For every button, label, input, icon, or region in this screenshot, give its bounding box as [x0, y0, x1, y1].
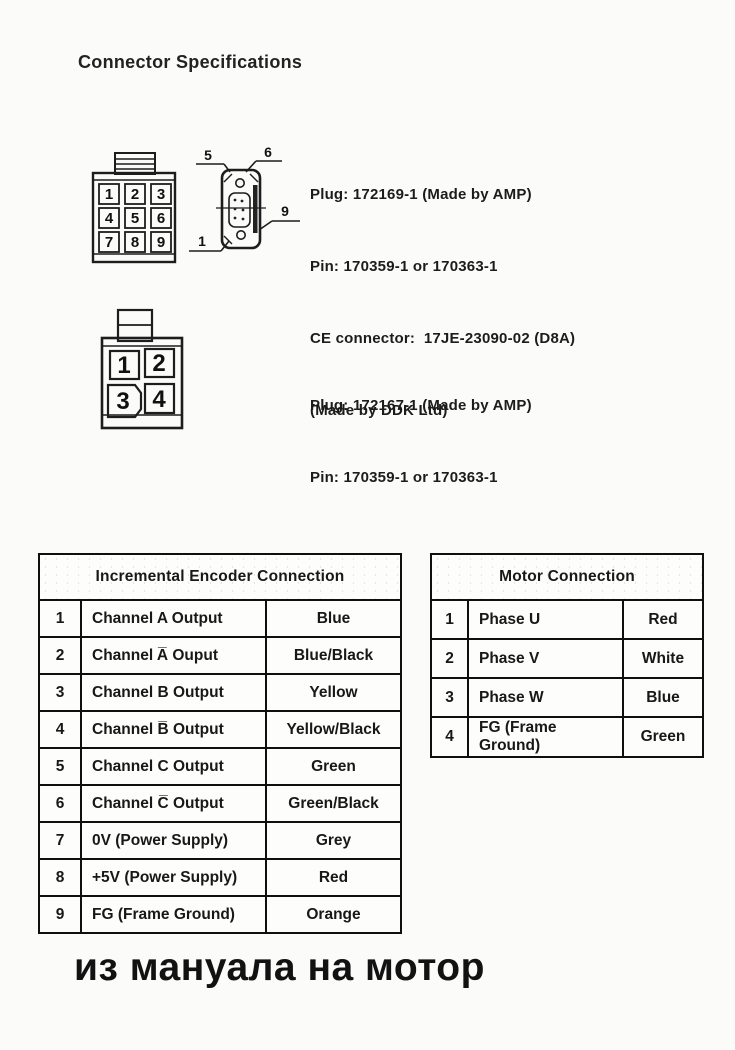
callout-label-1: 1 [198, 233, 206, 249]
table-row: 6 Channel C̅ Output Green/Black [39, 785, 401, 822]
wire-color-cell: Red [623, 600, 703, 639]
wire-color-cell: Green [266, 748, 401, 785]
motor-table-title: Motor Connection [431, 554, 703, 600]
signal-cell: Phase W [468, 678, 623, 717]
table-row: 2 Channel A̅ Ouput Blue/Black [39, 637, 401, 674]
motor-connector-front-view: 1 2 3 4 [102, 310, 182, 428]
pin-cell: 7 [39, 822, 81, 859]
pin-number: 4 [152, 386, 166, 413]
encoder-connector-diagram: 1 2 3 4 5 6 7 8 9 [82, 138, 317, 273]
table-row: 1 Phase U Red [431, 600, 703, 639]
signal-cell: Channel A Output [81, 600, 266, 637]
pin-number: 3 [116, 388, 129, 415]
table-row: 2 Phase V White [431, 639, 703, 678]
pin-number: 4 [105, 210, 114, 227]
pin-number: 1 [105, 186, 113, 203]
encoder-connector-front-view: 1 2 3 4 5 6 7 8 9 [93, 153, 175, 262]
pin-cell: 2 [431, 639, 468, 678]
table-row: 3 Phase W Blue [431, 678, 703, 717]
table-header-row: Motor Connection [431, 554, 703, 600]
pin-cell: 1 [39, 600, 81, 637]
encoder-connector-side-view [216, 170, 266, 248]
callout-label-6: 6 [264, 144, 272, 160]
motor-connector-diagram: 1 2 3 4 [95, 303, 205, 433]
wire-color-cell: Yellow [266, 674, 401, 711]
table-row: 4 Channel B̅ Output Yellow/Black [39, 711, 401, 748]
signal-cell: Channel B̅ Output [81, 711, 266, 748]
pin-cell: 5 [39, 748, 81, 785]
wire-color-cell: Grey [266, 822, 401, 859]
pin-number: 3 [157, 186, 165, 203]
callout-label-9: 9 [281, 203, 289, 219]
pin-cell: 4 [39, 711, 81, 748]
table-row: 5 Channel C Output Green [39, 748, 401, 785]
table-row: 4 FG (Frame Ground) Green [431, 717, 703, 757]
pin-number: 9 [157, 234, 165, 251]
wire-color-cell: Blue [266, 600, 401, 637]
signal-cell: Channel C Output [81, 748, 266, 785]
pin-cell: 8 [39, 859, 81, 896]
signal-cell: Phase V [468, 639, 623, 678]
wire-color-cell: Yellow/Black [266, 711, 401, 748]
table-row: 9 FG (Frame Ground) Orange [39, 896, 401, 933]
pin-number: 7 [105, 234, 113, 251]
incremental-encoder-table: Incremental Encoder Connection 1 Channel… [38, 553, 402, 934]
pin-number: 2 [152, 350, 165, 377]
signal-cell: FG (Frame Ground) [81, 896, 266, 933]
wire-color-cell: Green [623, 717, 703, 757]
wire-color-cell: Orange [266, 896, 401, 933]
table-row: 7 0V (Power Supply) Grey [39, 822, 401, 859]
pin-number: 8 [131, 234, 139, 251]
wire-color-cell: White [623, 639, 703, 678]
motor-plug-specs: Plug: 172167-1 (Made by AMP) Pin: 170359… [310, 346, 532, 538]
signal-cell: Channel A̅ Ouput [81, 637, 266, 674]
pin-cell: 1 [431, 600, 468, 639]
wire-color-cell: Blue [623, 678, 703, 717]
pin-number: 2 [131, 186, 139, 203]
handwritten-note: из мануала на мотор [74, 946, 485, 990]
signal-cell: Channel B Output [81, 674, 266, 711]
signal-cell: 0V (Power Supply) [81, 822, 266, 859]
encoder-table-title: Incremental Encoder Connection [39, 554, 401, 600]
spec-line: Plug: 172167-1 (Made by AMP) [310, 394, 532, 418]
table-row: 1 Channel A Output Blue [39, 600, 401, 637]
spec-line: Plug: 172169-1 (Made by AMP) [310, 183, 575, 207]
wire-color-cell: Red [266, 859, 401, 896]
callout-label-5: 5 [204, 147, 212, 163]
table-header-row: Incremental Encoder Connection [39, 554, 401, 600]
signal-cell: FG (Frame Ground) [468, 717, 623, 757]
pin-cell: 3 [39, 674, 81, 711]
signal-cell: Phase U [468, 600, 623, 639]
table-row: 3 Channel B Output Yellow [39, 674, 401, 711]
pin-number: 6 [157, 210, 165, 227]
pin-number: 1 [117, 352, 130, 379]
page-title: Connector Specifications [78, 52, 302, 73]
scanned-manual-page: Connector Specifications 1 2 3 4 5 [0, 0, 735, 1050]
pin-cell: 4 [431, 717, 468, 757]
pin-cell: 3 [431, 678, 468, 717]
pin-cell: 9 [39, 896, 81, 933]
pin-cell: 6 [39, 785, 81, 822]
signal-cell: +5V (Power Supply) [81, 859, 266, 896]
wire-color-cell: Green/Black [266, 785, 401, 822]
spec-line: Pin: 170359-1 or 170363-1 [310, 466, 532, 490]
wire-color-cell: Blue/Black [266, 637, 401, 674]
table-row: 8 +5V (Power Supply) Red [39, 859, 401, 896]
pin-number: 5 [131, 210, 139, 227]
spec-line: Pin: 170359-1 or 170363-1 [310, 255, 575, 279]
signal-cell: Channel C̅ Output [81, 785, 266, 822]
pin-cell: 2 [39, 637, 81, 674]
motor-connection-table: Motor Connection 1 Phase U Red 2 Phase V… [430, 553, 704, 758]
